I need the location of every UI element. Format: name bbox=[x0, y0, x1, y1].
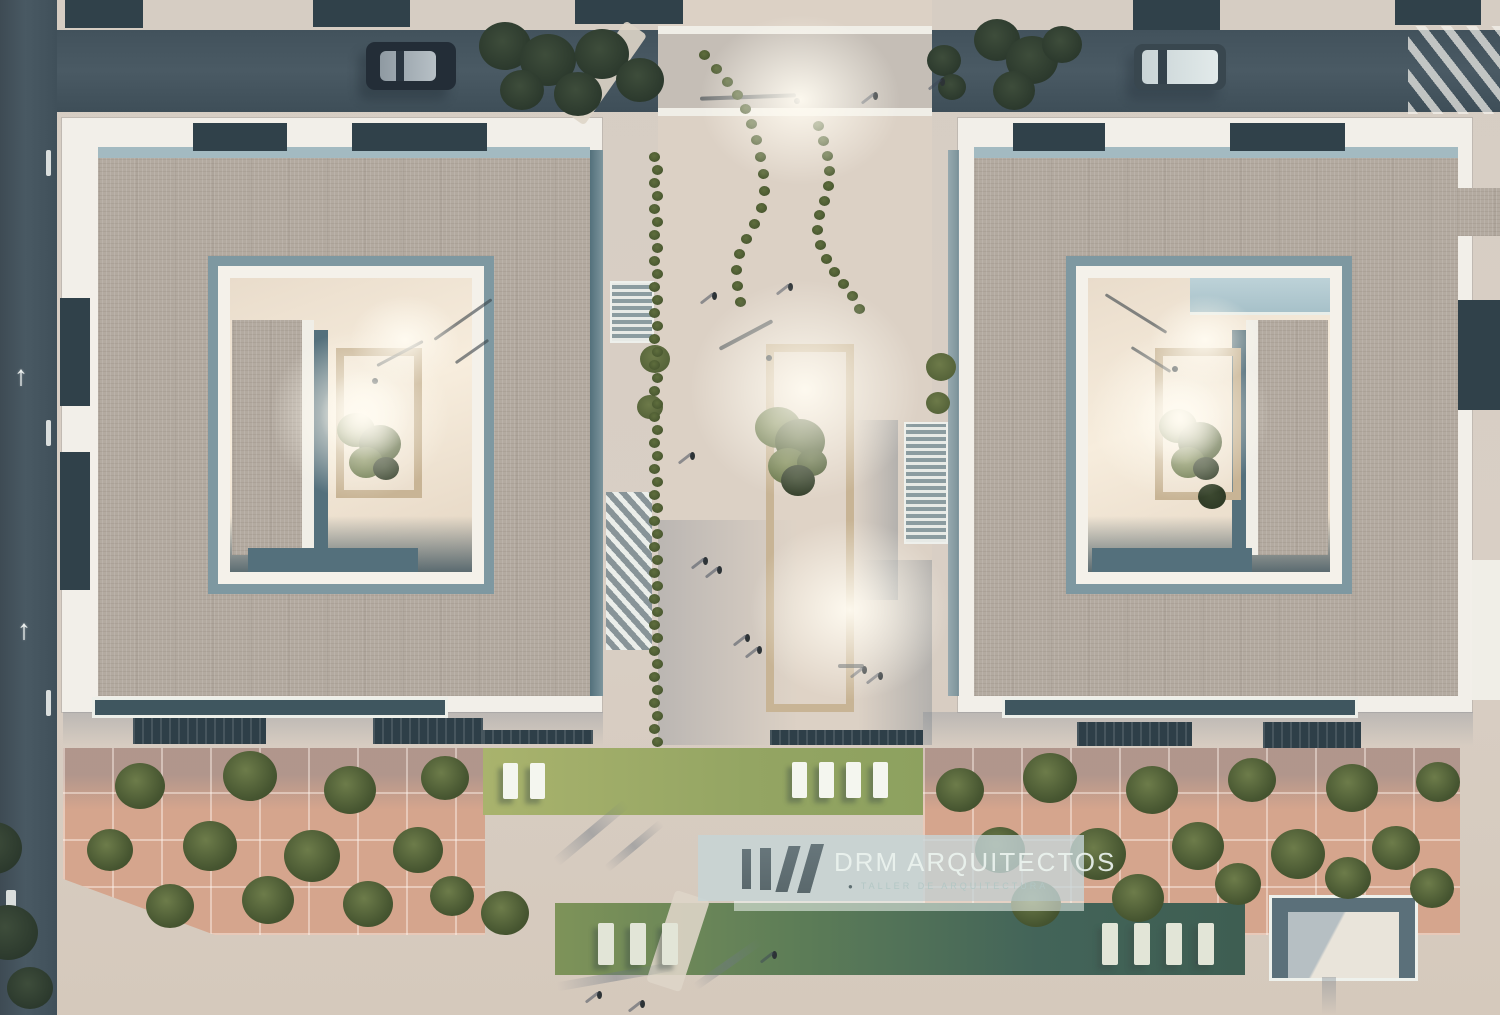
tree-icon bbox=[393, 827, 443, 873]
light-glow bbox=[1135, 375, 1225, 465]
tree-icon bbox=[242, 876, 294, 924]
shadow-streak bbox=[604, 820, 664, 872]
hedge-icon bbox=[649, 516, 660, 526]
tree-icon bbox=[500, 70, 544, 110]
sun-lounger bbox=[873, 762, 888, 798]
hedge-icon bbox=[649, 204, 660, 214]
watermark-tagline-text: TALLER DE ARQUITECTURA bbox=[861, 881, 1048, 891]
person-icon bbox=[772, 951, 777, 959]
balcony-bar-dark bbox=[1077, 722, 1192, 746]
hedge-icon bbox=[652, 711, 663, 721]
tree-icon bbox=[183, 821, 237, 871]
person-icon bbox=[717, 566, 722, 574]
hedge-icon bbox=[652, 633, 663, 643]
hedge-icon bbox=[649, 334, 660, 344]
balcony-inset bbox=[1230, 123, 1345, 151]
sun-lounger bbox=[1166, 923, 1182, 965]
tree-icon bbox=[324, 766, 376, 814]
tree-icon bbox=[223, 751, 277, 801]
hedge-icon bbox=[649, 412, 660, 422]
sun-lounger bbox=[530, 763, 545, 799]
tree-icon bbox=[1416, 762, 1460, 802]
shrub-icon bbox=[814, 210, 825, 220]
tree-icon bbox=[1271, 829, 1325, 879]
stairs bbox=[612, 283, 652, 341]
lane-arrow-icon: ↑ bbox=[14, 362, 38, 392]
ramp bbox=[606, 492, 652, 650]
sun-lounger bbox=[846, 762, 861, 798]
tree-icon bbox=[926, 392, 950, 414]
hedge-icon bbox=[649, 594, 660, 604]
hedge-icon bbox=[649, 490, 660, 500]
shrub-icon bbox=[741, 234, 752, 244]
person-icon bbox=[703, 557, 708, 565]
hedge-icon bbox=[649, 672, 660, 682]
balcony-bar-dark bbox=[770, 730, 923, 745]
light-glow bbox=[1150, 295, 1260, 385]
hedge-icon bbox=[652, 607, 663, 617]
hedge-icon bbox=[649, 360, 660, 370]
hedge-icon bbox=[649, 256, 660, 266]
shrub-icon bbox=[815, 240, 826, 250]
logo-bar bbox=[775, 846, 800, 892]
tree-icon bbox=[936, 768, 984, 812]
hedge-icon bbox=[649, 230, 660, 240]
watermark-brand: DRM ARQUITECTOS bbox=[834, 847, 1116, 878]
sun-lounger bbox=[1102, 923, 1118, 965]
tree-icon bbox=[1228, 758, 1276, 802]
balcony-bar-dark bbox=[483, 730, 593, 744]
hedge-icon bbox=[652, 555, 663, 565]
aerial-site-render: ↑↑ DRM ARQUITECTOS ●TALLER DE ARQUITECTU… bbox=[0, 0, 1500, 1015]
tree-icon bbox=[0, 905, 38, 960]
hedge-icon bbox=[652, 737, 663, 747]
hedge-icon bbox=[652, 529, 663, 539]
hedge-icon bbox=[649, 152, 660, 162]
hedge-icon bbox=[649, 698, 660, 708]
tree-icon bbox=[1023, 753, 1077, 803]
sun-lounger bbox=[503, 763, 518, 799]
sun-lounger bbox=[792, 762, 807, 798]
hedge-icon bbox=[652, 399, 663, 409]
balcony-inset bbox=[313, 0, 410, 27]
light-glow bbox=[690, 280, 920, 500]
shrub-icon bbox=[829, 267, 840, 277]
logo-bar bbox=[742, 849, 751, 889]
person-icon bbox=[640, 1000, 645, 1008]
balcony-bar-dark bbox=[373, 718, 483, 744]
hedge-icon bbox=[649, 438, 660, 448]
hedge-icon bbox=[652, 425, 663, 435]
tree-icon bbox=[1215, 863, 1261, 905]
watermark-underline bbox=[734, 901, 1084, 911]
road-marking bbox=[46, 690, 51, 716]
hedge-icon bbox=[649, 724, 660, 734]
hedge-icon bbox=[652, 685, 663, 695]
logo-bar bbox=[760, 848, 771, 890]
white-band bbox=[1472, 560, 1500, 700]
tree-icon bbox=[115, 763, 165, 809]
road-marking bbox=[46, 420, 51, 446]
tree-icon bbox=[421, 756, 469, 800]
tree-icon bbox=[7, 967, 53, 1009]
shrub-icon bbox=[821, 254, 832, 264]
sun-lounger bbox=[598, 923, 614, 965]
hedge-icon bbox=[652, 243, 663, 253]
light-glow bbox=[350, 295, 460, 385]
hedge-icon bbox=[652, 581, 663, 591]
shrub-icon bbox=[759, 186, 770, 196]
person-icon bbox=[940, 78, 945, 86]
facade-shadow bbox=[590, 150, 603, 696]
hedge-icon bbox=[652, 373, 663, 383]
shrub-icon bbox=[749, 219, 760, 229]
balcony-inset bbox=[1395, 0, 1481, 25]
balcony-bar bbox=[95, 700, 445, 715]
shrub-icon bbox=[819, 196, 830, 206]
tree-icon bbox=[87, 829, 133, 871]
shadow-streak bbox=[693, 938, 763, 990]
roof-patch bbox=[1456, 188, 1500, 236]
hedge-icon bbox=[649, 542, 660, 552]
logo-bar bbox=[797, 844, 824, 893]
hedge-icon bbox=[652, 295, 663, 305]
watermark-tagline: ●TALLER DE ARQUITECTURA bbox=[848, 881, 1048, 891]
watermark-panel: DRM ARQUITECTOS ●TALLER DE ARQUITECTURA bbox=[698, 835, 1084, 901]
light-glow bbox=[750, 520, 950, 700]
shrub-icon bbox=[812, 225, 823, 235]
balcony-inset bbox=[575, 0, 683, 24]
tree-icon bbox=[1410, 868, 1454, 908]
hedge-icon bbox=[652, 503, 663, 513]
hedge-icon bbox=[652, 321, 663, 331]
hedge-icon bbox=[649, 308, 660, 318]
hedge-icon bbox=[649, 620, 660, 630]
hedge-icon bbox=[652, 191, 663, 201]
balcony-inset bbox=[1133, 0, 1220, 30]
tree-icon bbox=[1326, 764, 1378, 812]
balcony-bar-dark bbox=[1263, 722, 1361, 748]
streak-v bbox=[1322, 977, 1336, 1015]
hedge-icon bbox=[652, 217, 663, 227]
balcony-inset bbox=[60, 452, 90, 590]
balcony-inset bbox=[65, 0, 143, 28]
tree-icon bbox=[343, 881, 393, 927]
person-icon bbox=[597, 991, 602, 999]
sun-lounger bbox=[1134, 923, 1150, 965]
lane-arrow-icon: ↑ bbox=[17, 616, 41, 646]
tree-icon bbox=[1126, 766, 1178, 814]
hedge-icon bbox=[652, 659, 663, 669]
hedge-icon bbox=[652, 269, 663, 279]
sun-lounger bbox=[819, 762, 834, 798]
hedge-icon bbox=[649, 568, 660, 578]
shrub-icon bbox=[734, 249, 745, 259]
bullet-icon: ● bbox=[848, 882, 856, 891]
tree-icon bbox=[927, 45, 961, 76]
tree-icon bbox=[926, 353, 956, 381]
sun-lounger bbox=[630, 923, 646, 965]
shadow-band bbox=[1092, 548, 1252, 572]
balcony-inset bbox=[193, 123, 287, 151]
tree-icon bbox=[1112, 874, 1164, 922]
tree-icon bbox=[0, 822, 22, 874]
hedge-icon bbox=[652, 347, 663, 357]
tree-icon bbox=[284, 830, 340, 882]
tree-icon bbox=[146, 884, 194, 928]
balcony-bar bbox=[1005, 700, 1355, 715]
light-glow bbox=[700, 15, 900, 185]
shadow-band bbox=[248, 548, 418, 572]
road-marking bbox=[46, 150, 51, 176]
shrub-icon bbox=[756, 203, 767, 213]
hedge-icon bbox=[649, 386, 660, 396]
tree-icon bbox=[1372, 826, 1420, 870]
tree-icon bbox=[1325, 857, 1371, 899]
tree-icon bbox=[1042, 26, 1082, 63]
balcony-inset bbox=[1458, 300, 1500, 410]
tree-icon bbox=[616, 58, 664, 102]
hedge-icon bbox=[649, 178, 660, 188]
hedge-icon bbox=[652, 477, 663, 487]
shade-top bbox=[923, 712, 1473, 746]
tree-icon bbox=[481, 891, 529, 935]
tree-icon bbox=[430, 876, 474, 916]
balcony-inset bbox=[352, 123, 487, 151]
hedge-icon bbox=[649, 282, 660, 292]
sun-lounger bbox=[1198, 923, 1214, 965]
shrub-icon bbox=[731, 265, 742, 275]
tree-icon bbox=[554, 72, 602, 116]
crosswalk bbox=[1408, 26, 1500, 114]
tree-icon bbox=[993, 71, 1035, 110]
hedge-icon bbox=[652, 165, 663, 175]
hedge-icon bbox=[652, 451, 663, 461]
balcony-inset bbox=[1013, 123, 1105, 151]
hedge-icon bbox=[649, 464, 660, 474]
hedge-icon bbox=[649, 646, 660, 656]
balcony-bar-dark bbox=[133, 718, 266, 744]
sun-lounger bbox=[662, 923, 678, 965]
tree-icon bbox=[1172, 822, 1224, 870]
balcony-inset bbox=[60, 298, 90, 406]
